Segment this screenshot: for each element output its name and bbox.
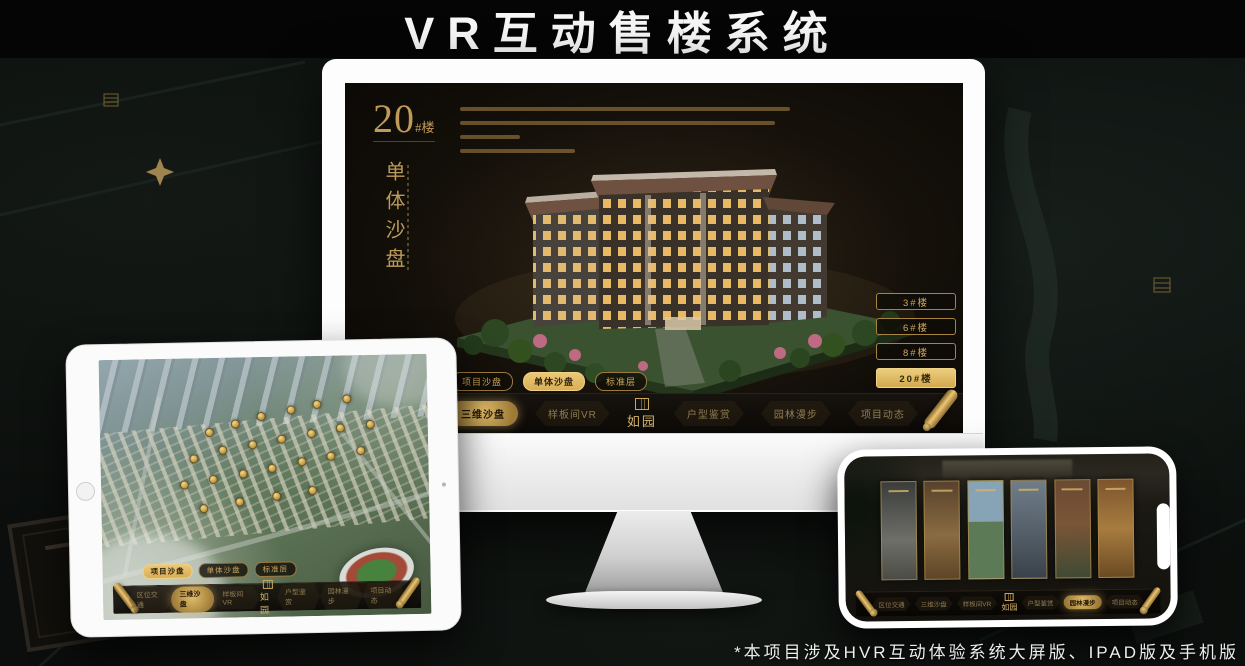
floor-button-8[interactable]: 8#楼 xyxy=(876,343,956,360)
building-badge[interactable] xyxy=(200,504,209,513)
building-badge[interactable] xyxy=(297,458,306,467)
nav-item-location[interactable]: 区位交通 xyxy=(872,597,910,611)
building-badge[interactable] xyxy=(336,423,345,432)
vr-scene-panel[interactable] xyxy=(880,481,917,580)
building-badge[interactable] xyxy=(257,412,266,421)
nav-item-garden-walk[interactable]: 园林漫步 xyxy=(1064,595,1102,609)
building-badge[interactable] xyxy=(272,492,281,501)
nav-item-3d-sandtable[interactable]: 三维沙盘 xyxy=(448,401,518,426)
phone-screen: 区位交通 三维沙盘 样板间VR 如园 户型鉴赏 园林漫步 项目动态 xyxy=(844,453,1171,621)
ipad-nav-bar: 区位交通 三维沙盘 样板间VR 如园 户型鉴赏 园林漫步 项目动态 xyxy=(113,580,421,614)
ruyuan-logo[interactable]: 如园 xyxy=(627,398,657,430)
nav-item-showroom-vr[interactable]: 样板间VR xyxy=(957,596,998,610)
phone-nav-bar: 区位交通 三维沙盘 样板间VR 如园 户型鉴赏 园林漫步 项目动态 xyxy=(855,588,1161,616)
phone-device: 区位交通 三维沙盘 样板间VR 如园 户型鉴赏 园林漫步 项目动态 xyxy=(837,446,1178,629)
building-badge[interactable] xyxy=(342,394,351,403)
title-bar: VR互动售楼系统 xyxy=(0,0,1245,58)
floor-button-20[interactable]: 20#楼 xyxy=(876,368,956,388)
nav-item-showroom-vr[interactable]: 样板间VR xyxy=(535,401,610,426)
floor-button-group: 3#楼 6#楼 8#楼 20#楼 xyxy=(876,293,956,388)
building-badge[interactable] xyxy=(356,446,365,455)
building-badge[interactable] xyxy=(218,446,227,455)
monitor-base xyxy=(546,591,762,609)
building-badge[interactable] xyxy=(277,435,286,444)
nav-item-location[interactable]: 区位交通 xyxy=(129,586,172,613)
nav-item-floorplans[interactable]: 户型鉴赏 xyxy=(277,583,320,610)
building-badge[interactable] xyxy=(205,428,214,437)
nav-item-garden-walk[interactable]: 园林漫步 xyxy=(761,401,831,426)
nav-item-floorplans[interactable]: 户型鉴赏 xyxy=(674,401,744,426)
floor-button-3[interactable]: 3#楼 xyxy=(876,293,956,310)
ipad-device: 项目沙盘 单体沙盘 标准层 区位交通 三维沙盘 样板间VR 如园 户型鉴赏 园林… xyxy=(65,337,462,637)
building-badge[interactable] xyxy=(209,475,218,484)
ipad-screen: 项目沙盘 单体沙盘 标准层 区位交通 三维沙盘 样板间VR 如园 户型鉴赏 园林… xyxy=(99,354,432,620)
tab-single-sandtable[interactable]: 单体沙盘 xyxy=(523,372,585,391)
ruyuan-logo[interactable]: 如园 xyxy=(1001,593,1017,613)
nav-item-floorplans[interactable]: 户型鉴赏 xyxy=(1021,595,1059,609)
vr-scene-panel[interactable] xyxy=(1097,478,1134,577)
ruyuan-logo-text: 如园 xyxy=(260,589,278,615)
ipad-camera-dot xyxy=(442,482,446,486)
building-badge[interactable] xyxy=(268,463,277,472)
nav-item-project-news[interactable]: 项目动态 xyxy=(1106,595,1144,609)
vr-scene-panel[interactable] xyxy=(1054,479,1091,578)
nav-item-3d-sandtable[interactable]: 三维沙盘 xyxy=(171,585,214,612)
ipad-sub-tabs: 项目沙盘 单体沙盘 标准层 xyxy=(142,561,296,579)
ruyuan-logo-text: 如园 xyxy=(1001,602,1017,613)
building-badge[interactable] xyxy=(365,420,374,429)
scroll-icon[interactable] xyxy=(1141,585,1162,611)
ruyuan-seal-icon xyxy=(1005,593,1014,601)
building-badge[interactable] xyxy=(307,429,316,438)
ruyuan-logo-text: 如园 xyxy=(627,411,657,430)
nav-item-showroom-vr[interactable]: 样板间VR xyxy=(214,586,260,610)
building-badge[interactable] xyxy=(313,400,322,409)
building-badge[interactable] xyxy=(236,498,245,507)
vr-scene-panels xyxy=(880,478,1135,580)
tab-standard-floor[interactable]: 标准层 xyxy=(254,561,296,577)
monitor-sub-tabs: 项目沙盘 单体沙盘 标准层 xyxy=(451,372,647,391)
tab-project-sandtable[interactable]: 项目沙盘 xyxy=(142,563,192,579)
floor-button-6[interactable]: 6#楼 xyxy=(876,318,956,335)
vr-scene-panel[interactable] xyxy=(924,480,961,579)
nav-item-garden-walk[interactable]: 园林漫步 xyxy=(320,583,363,610)
vr-sales-system-showcase: VR互动售楼系统 20#楼 单体沙盘 xyxy=(0,0,1245,666)
phone-notch xyxy=(1157,503,1171,569)
ruyuan-seal-icon xyxy=(635,398,649,410)
tab-project-sandtable[interactable]: 项目沙盘 xyxy=(451,372,513,391)
vr-scene-panel[interactable] xyxy=(1011,479,1048,578)
ruyuan-logo[interactable]: 如园 xyxy=(259,579,277,615)
building-badge[interactable] xyxy=(286,406,295,415)
interior-ceiling-beam xyxy=(942,459,1072,479)
nav-item-project-news[interactable]: 项目动态 xyxy=(848,401,918,426)
ipad-home-button[interactable] xyxy=(76,481,95,500)
building-badge[interactable] xyxy=(308,486,317,495)
building-badge[interactable] xyxy=(231,420,240,429)
ruyuan-seal-icon xyxy=(263,579,273,588)
tab-standard-floor[interactable]: 标准层 xyxy=(595,372,647,391)
footnote-text: *本项目涉及HVR互动体验系统大屏版、IPAD版及手机版 xyxy=(734,638,1239,663)
scroll-icon[interactable] xyxy=(854,589,876,615)
tab-single-sandtable[interactable]: 单体沙盘 xyxy=(198,562,248,578)
nav-item-3d-sandtable[interactable]: 三维沙盘 xyxy=(915,597,953,611)
building-badge[interactable] xyxy=(180,481,189,490)
building-badge[interactable] xyxy=(189,454,198,463)
building-badge[interactable] xyxy=(327,452,336,461)
vr-scene-panel[interactable] xyxy=(967,480,1004,579)
building-badge[interactable] xyxy=(238,469,247,478)
scroll-icon[interactable] xyxy=(922,387,960,431)
page-title: VR互动售楼系统 xyxy=(404,0,841,62)
building-badge[interactable] xyxy=(248,440,257,449)
